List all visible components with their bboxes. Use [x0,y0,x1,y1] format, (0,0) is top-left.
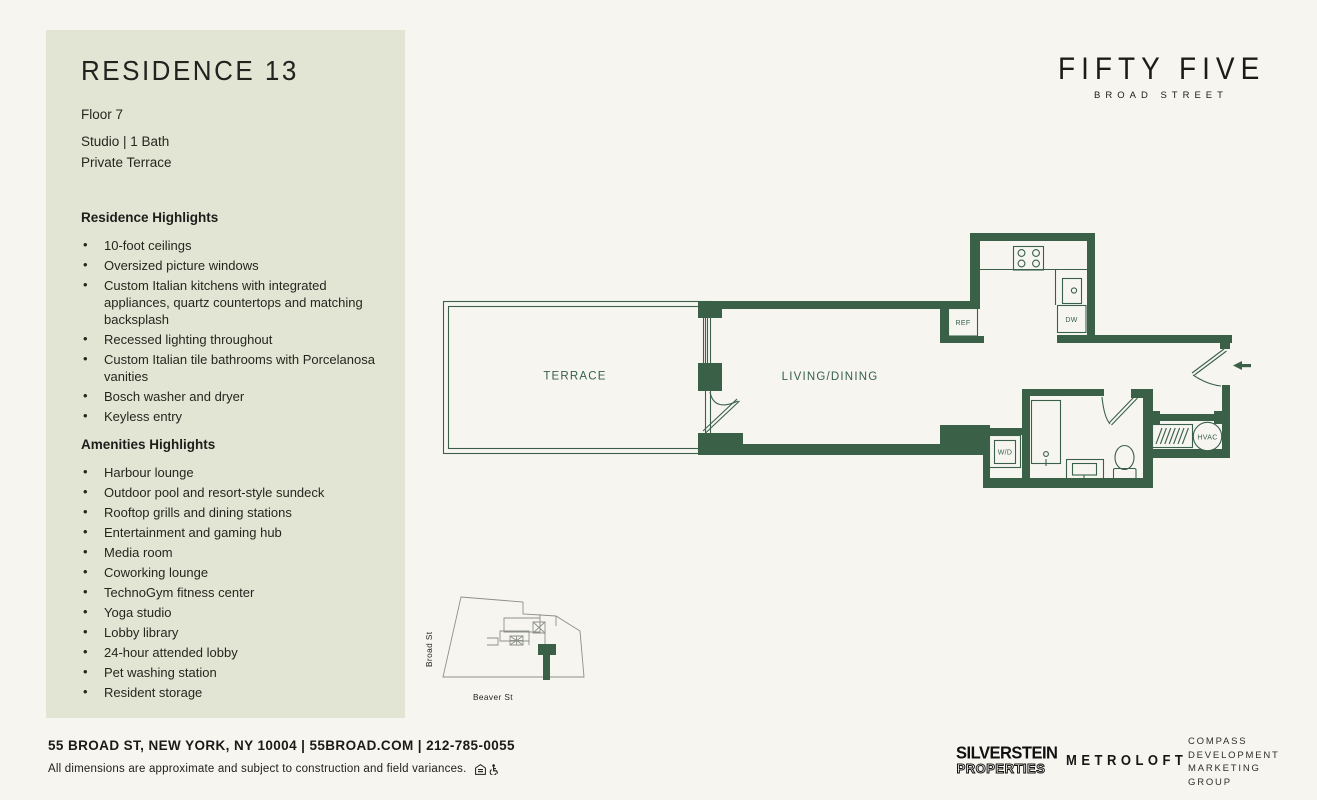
sink-icon [1063,279,1082,304]
list-item: Coworking lounge [81,564,379,581]
floor-label: Floor 7 [81,106,379,123]
list-item: Pet washing station [81,664,379,681]
layout-label: Studio | 1 Bath [81,133,379,150]
bathroom-door [1102,396,1138,425]
entry-arrow-icon [1233,361,1251,370]
svg-text:HVAC: HVAC [1197,435,1217,442]
shower-icon [1032,401,1061,467]
list-item: Outdoor pool and resort-style sundeck [81,484,379,501]
terrace-door [703,392,740,433]
residence-info-panel: RESIDENCE 13 Floor 7 Studio | 1 Bath Pri… [46,30,405,718]
walls [698,233,1232,488]
floor-plan: DW REF [440,226,1262,506]
list-item: Keyless entry [81,408,379,425]
toilet-icon [1114,446,1137,480]
footer-disclaimer: All dimensions are approximate and subje… [48,763,499,775]
svg-text:DW: DW [1065,317,1077,324]
list-item: Oversized picture windows [81,257,379,274]
building-logo-sub: BROAD STREET [1058,90,1264,101]
compass-logo-line: COMPASS [1188,735,1280,749]
louver-vent-icon [1153,425,1193,448]
building-logo-name: FIFTY FIVE [1058,52,1264,86]
residence-highlights-list: 10-foot ceilingsOversized picture window… [81,237,379,425]
equal-housing-icon [475,764,486,775]
list-item: Rooftop grills and dining stations [81,504,379,521]
list-item: Custom Italian tile bathrooms with Porce… [81,351,379,385]
list-item: Recessed lighting throughout [81,331,379,348]
living-dining-label: LIVING/DINING [782,371,879,383]
key-plan-map: Broad St Beaver St [413,586,613,711]
svg-text:REF: REF [956,320,971,327]
list-item: Harbour lounge [81,464,379,481]
list-item: 24-hour attended lobby [81,644,379,661]
list-item: Bosch washer and dryer [81,388,379,405]
list-item: Yoga studio [81,604,379,621]
list-item: Custom Italian kitchens with integrated … [81,277,379,328]
compass-logo-line: GROUP [1188,776,1280,790]
compass-logo-line: DEVELOPMENT [1188,749,1280,763]
refrigerator-icon: REF [949,309,978,337]
vanity-sink-icon [1067,460,1104,482]
stove-icon [1014,247,1044,271]
feature-label: Private Terrace [81,154,379,171]
terrace-label: TERRACE [543,371,606,383]
svg-text:W/D: W/D [998,450,1013,457]
list-item: Media room [81,544,379,561]
beaver-st-label: Beaver St [473,692,513,702]
list-item: Lobby library [81,624,379,641]
compass-logo-line: MARKETING [1188,762,1280,776]
list-item: 10-foot ceilings [81,237,379,254]
page: RESIDENCE 13 Floor 7 Studio | 1 Bath Pri… [0,0,1317,800]
metroloft-logo: METROLOFT [1066,751,1187,768]
list-item: TechnoGym fitness center [81,584,379,601]
washer-dryer-icon: W/D [990,436,1021,468]
footer-address: 55 BROAD ST, NEW YORK, NY 10004 | 55BROA… [48,738,515,753]
list-item: Resident storage [81,684,379,701]
compass-development-logo: COMPASSDEVELOPMENTMARKETINGGROUP [1188,735,1280,789]
entry-door [1192,349,1227,386]
amenities-highlights-heading: Amenities Highlights [81,437,379,452]
accessibility-icon [489,764,499,775]
dishwasher-icon: DW [1058,306,1087,333]
list-item: Entertainment and gaming hub [81,524,379,541]
hvac-icon: HVAC [1193,422,1221,450]
disclaimer-text: All dimensions are approximate and subje… [48,763,467,775]
silverstein-properties-logo: SILVERSTEIN PROPERTIES [956,744,1046,776]
unit-location-marker [538,644,556,680]
building-logo: FIFTY FIVE BROAD STREET [1058,52,1264,101]
amenities-highlights-list: Harbour loungeOutdoor pool and resort-st… [81,464,379,701]
residence-title: RESIDENCE 13 [81,54,379,86]
kitchen-counter [980,270,1087,306]
residence-highlights-heading: Residence Highlights [81,210,379,225]
broad-st-label: Broad St [424,631,434,667]
building-outline [443,597,584,677]
